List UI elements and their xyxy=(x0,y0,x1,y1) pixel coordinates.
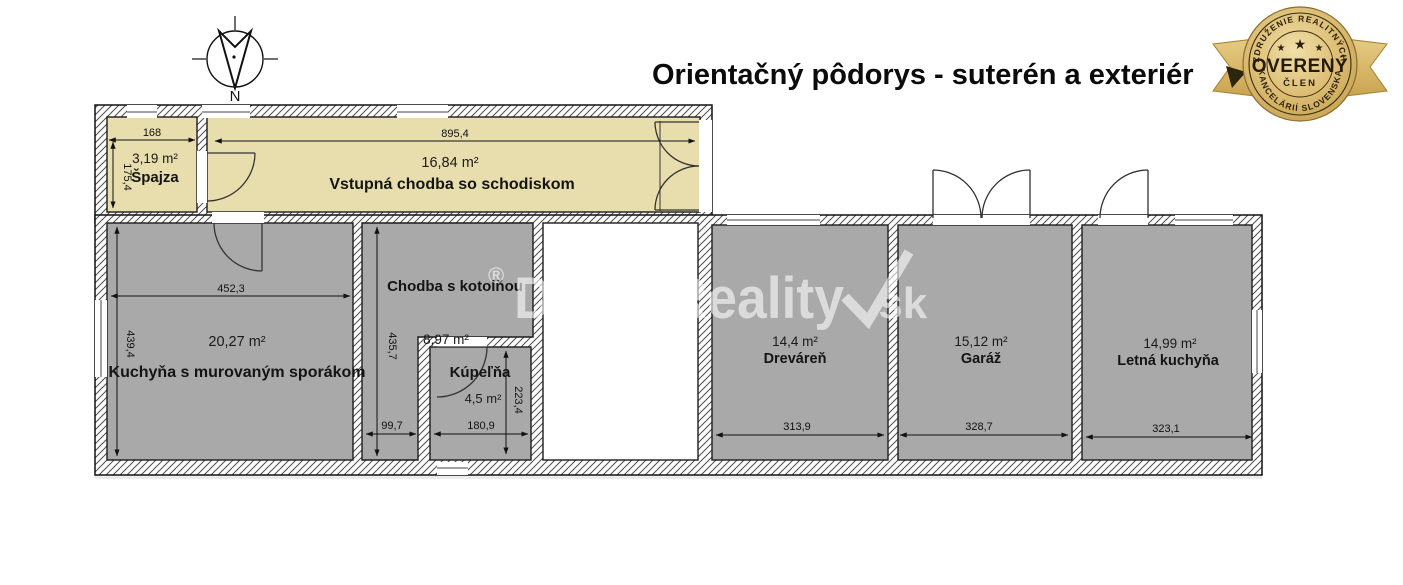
label-garaz: Garáž xyxy=(961,351,1001,367)
dim-chodba-width: 99,7 xyxy=(381,420,402,432)
verified-badge: ZDRUŽENIE REALITNÝCH KANCELÁRIÍ SLOVENSK… xyxy=(1213,7,1387,121)
area-chodba: 8,97 m² xyxy=(423,332,469,347)
badge-main-label: OVERENÝ xyxy=(1252,55,1348,77)
area-drevaren: 14,4 m² xyxy=(772,334,818,349)
label-drevaren: Dreváreň xyxy=(764,351,827,367)
dim-drevaren-width: 313,9 xyxy=(783,421,811,433)
area-spajza: 3,19 m² xyxy=(132,151,178,166)
label-kitchen: Kuchyňa s murovaným sporákom xyxy=(109,364,366,381)
dim-letna-width: 323,1 xyxy=(1152,423,1180,435)
area-kupelna: 4,5 m² xyxy=(465,391,503,406)
dim-chodba-height: 435,7 xyxy=(386,332,398,360)
dim-kupelna-width: 180,9 xyxy=(467,420,495,432)
dim-garaz-width: 328,7 xyxy=(965,421,993,433)
floorplan-canvas: 168 175,4 895,4 452,3 439,4 435,7 99,7 1… xyxy=(0,0,1403,585)
compass: N xyxy=(192,16,278,105)
area-kitchen: 20,27 m² xyxy=(208,334,265,350)
dim-spajza-width: 168 xyxy=(143,127,161,139)
dim-hall-width: 895,4 xyxy=(441,128,469,140)
door-arc xyxy=(982,170,1030,218)
badge-sub-label: ČLEN xyxy=(1283,77,1317,89)
star-icon: ★ xyxy=(1315,43,1324,54)
watermark-text: DobréReality xyxy=(514,266,844,331)
label-hall: Vstupná chodba so schodiskom xyxy=(329,176,574,193)
door-arc xyxy=(1100,170,1148,218)
room-unlabeled xyxy=(543,223,698,460)
page-title: Orientačný pôdorys - suterén a exteriér xyxy=(652,59,1194,91)
compass-needle-icon xyxy=(219,31,251,88)
compass-north-label: N xyxy=(230,88,241,105)
door-opening xyxy=(212,212,264,223)
label-spajza: Špajza xyxy=(131,168,179,186)
label-letna: Letná kuchyňa xyxy=(1117,353,1219,369)
plan-shadow-edge xyxy=(95,476,1262,479)
dim-kitchen-height: 439,4 xyxy=(124,330,136,358)
watermark-registered: ® xyxy=(488,263,504,288)
door-arc xyxy=(933,170,981,218)
floorplan-page: 168 175,4 895,4 452,3 439,4 435,7 99,7 1… xyxy=(0,0,1403,585)
area-letna: 14,99 m² xyxy=(1143,336,1197,351)
label-kupelna: Kúpeľňa xyxy=(450,364,511,381)
door-opening xyxy=(1098,215,1148,225)
star-icon: ★ xyxy=(1277,43,1286,54)
door-opening xyxy=(197,151,207,203)
area-hall: 16,84 m² xyxy=(421,155,478,171)
star-icon: ★ xyxy=(1294,36,1307,52)
door-opening xyxy=(699,120,712,212)
area-garaz: 15,12 m² xyxy=(954,334,1008,349)
dim-kupelna-height: 223,4 xyxy=(512,386,524,414)
dim-kitchen-width: 452,3 xyxy=(217,283,245,295)
